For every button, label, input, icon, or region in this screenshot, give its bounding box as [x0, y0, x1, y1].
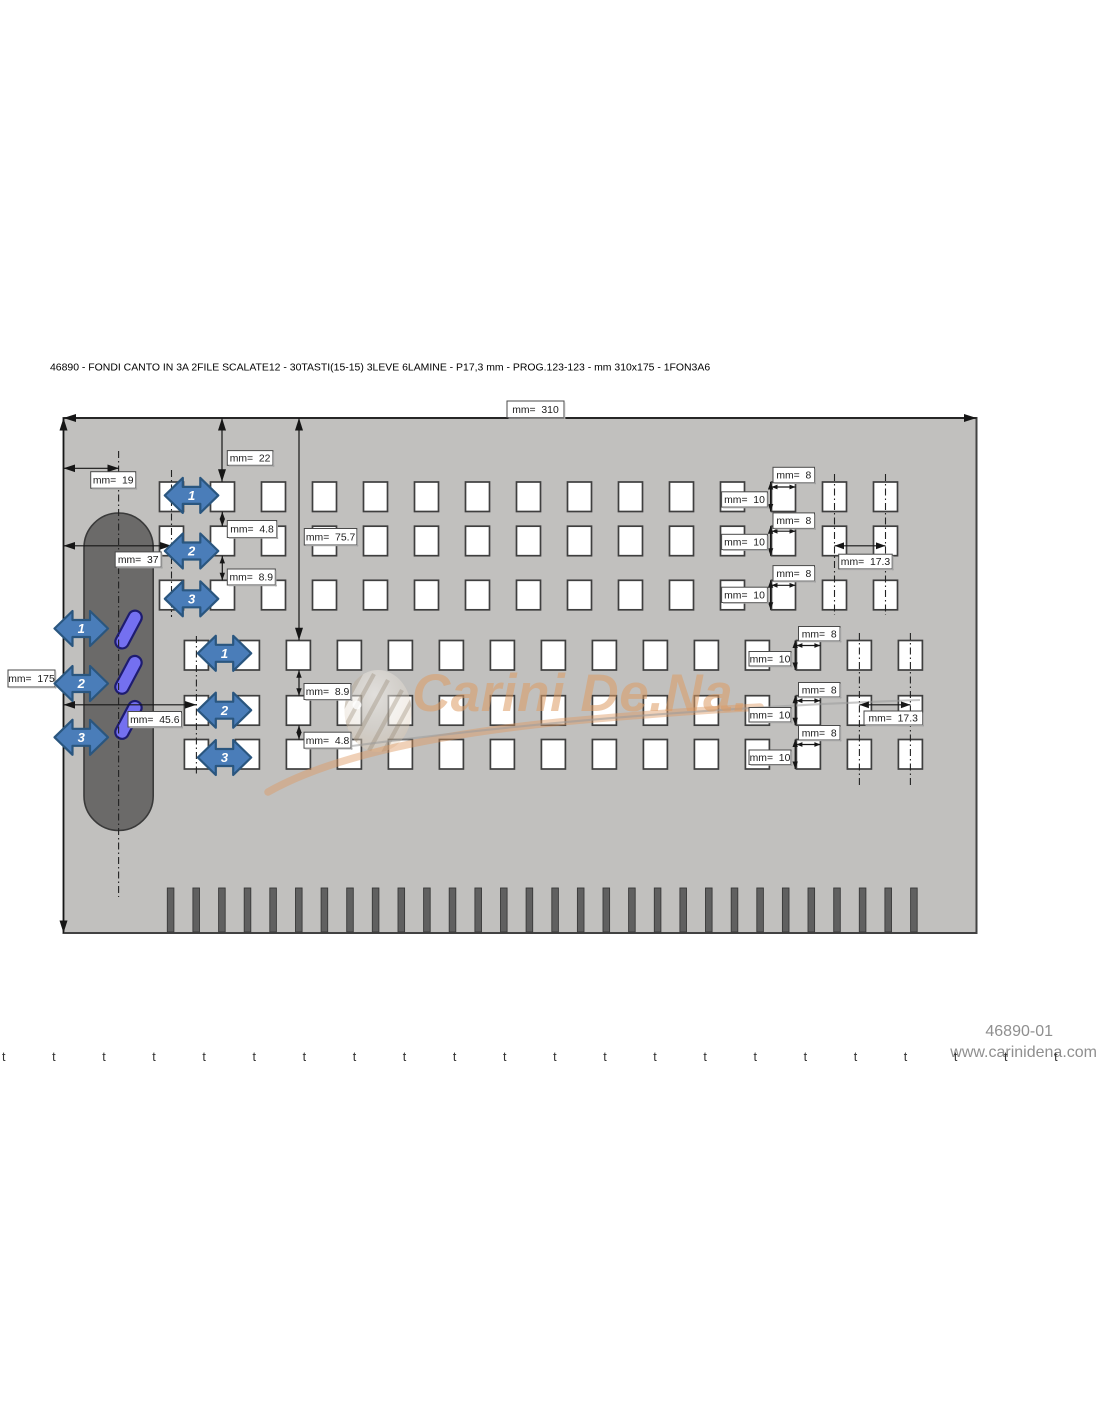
- svg-text:t: t: [553, 1050, 557, 1064]
- svg-text:t: t: [503, 1050, 507, 1064]
- svg-text:3: 3: [221, 750, 229, 765]
- svg-text:mm= 175: mm= 175: [8, 674, 55, 685]
- svg-text:t: t: [854, 1050, 858, 1064]
- svg-text:mm= 4.8: mm= 4.8: [230, 525, 274, 536]
- svg-text:mm= 4.8: mm= 4.8: [306, 736, 350, 747]
- svg-text:t: t: [453, 1050, 457, 1064]
- svg-text:t: t: [954, 1050, 958, 1064]
- svg-text:mm= 8: mm= 8: [776, 471, 811, 482]
- svg-text:t: t: [1054, 1050, 1058, 1064]
- svg-text:t: t: [303, 1050, 307, 1064]
- svg-text:mm= 22: mm= 22: [230, 454, 271, 465]
- svg-text:mm= 8: mm= 8: [776, 516, 811, 527]
- svg-text:t: t: [253, 1050, 257, 1064]
- svg-text:t: t: [202, 1050, 206, 1064]
- svg-text:mm= 75.7: mm= 75.7: [306, 532, 356, 543]
- svg-text:mm= 8: mm= 8: [776, 569, 811, 580]
- svg-text:t: t: [1004, 1050, 1008, 1064]
- svg-text:mm= 17.3: mm= 17.3: [869, 714, 919, 725]
- svg-text:t: t: [52, 1050, 56, 1064]
- svg-text:t: t: [703, 1050, 707, 1064]
- svg-text:t: t: [653, 1050, 657, 1064]
- svg-text:mm= 8.9: mm= 8.9: [306, 687, 350, 698]
- svg-text:2: 2: [77, 676, 86, 691]
- svg-text:1: 1: [78, 621, 85, 636]
- svg-text:3: 3: [188, 591, 196, 606]
- svg-text:t: t: [403, 1050, 407, 1064]
- svg-text:mm= 19: mm= 19: [93, 476, 134, 487]
- svg-text:46890 - FONDI CANTO IN 3A 2FIL: 46890 - FONDI CANTO IN 3A 2FILE SCALATE1…: [50, 363, 710, 374]
- svg-text:2: 2: [220, 703, 229, 718]
- svg-text:mm= 8.9: mm= 8.9: [229, 573, 273, 584]
- svg-text:mm= 10: mm= 10: [750, 654, 791, 665]
- svg-text:www.carinidena.com: www.carinidena.com: [949, 1044, 1097, 1061]
- svg-text:46890-01: 46890-01: [985, 1023, 1053, 1040]
- svg-text:mm= 10: mm= 10: [724, 538, 765, 549]
- svg-text:mm= 310: mm= 310: [512, 405, 559, 416]
- svg-text:t: t: [754, 1050, 758, 1064]
- svg-text:t: t: [102, 1050, 106, 1064]
- svg-text:2: 2: [187, 544, 196, 559]
- svg-text:1: 1: [221, 646, 228, 661]
- svg-text:mm= 10: mm= 10: [724, 591, 765, 602]
- svg-text:mm= 8: mm= 8: [802, 629, 837, 640]
- svg-text:t: t: [353, 1050, 357, 1064]
- svg-text:t: t: [904, 1050, 908, 1064]
- svg-text:t: t: [152, 1050, 156, 1064]
- svg-text:t: t: [2, 1050, 6, 1064]
- svg-text:mm= 8: mm= 8: [802, 728, 837, 739]
- svg-text:1: 1: [188, 488, 195, 503]
- svg-text:t: t: [804, 1050, 808, 1064]
- svg-text:mm= 17.3: mm= 17.3: [841, 557, 891, 568]
- svg-text:mm= 37: mm= 37: [118, 555, 159, 566]
- svg-text:mm= 8: mm= 8: [802, 685, 837, 696]
- svg-text:3: 3: [78, 730, 86, 745]
- svg-text:mm= 45.6: mm= 45.6: [130, 715, 180, 726]
- svg-text:mm= 10: mm= 10: [724, 495, 765, 506]
- svg-text:mm= 10: mm= 10: [750, 710, 791, 721]
- svg-text:mm= 10: mm= 10: [750, 753, 791, 764]
- svg-text:t: t: [603, 1050, 607, 1064]
- svg-text:Carini De.Na.: Carini De.Na.: [412, 664, 748, 723]
